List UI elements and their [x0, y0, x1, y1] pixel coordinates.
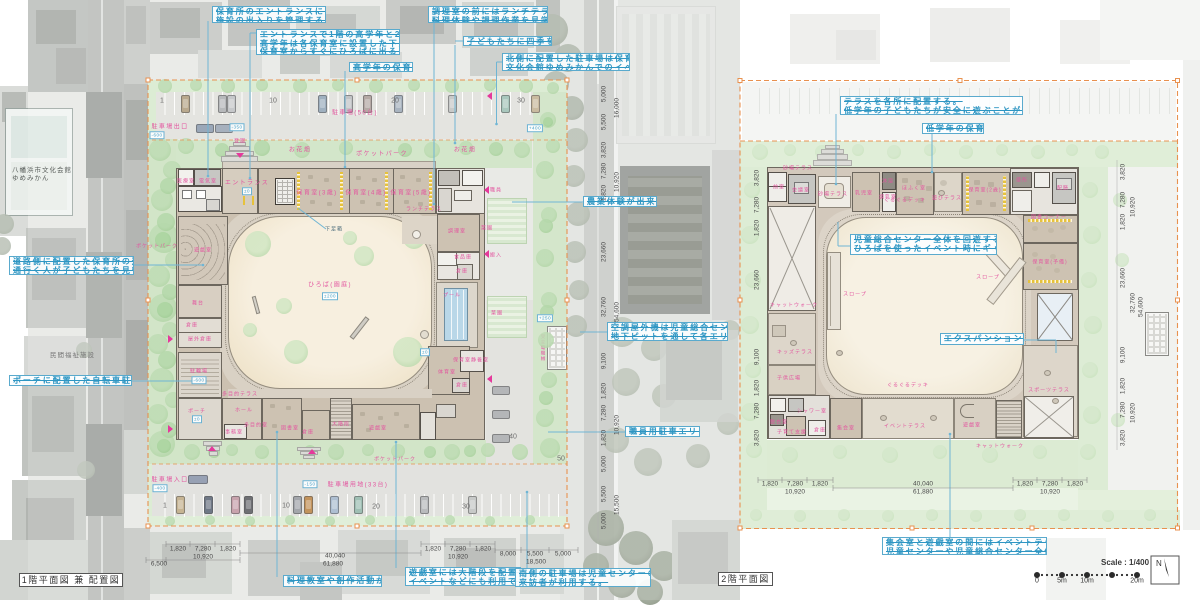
svg-text:N: N: [1156, 559, 1162, 568]
